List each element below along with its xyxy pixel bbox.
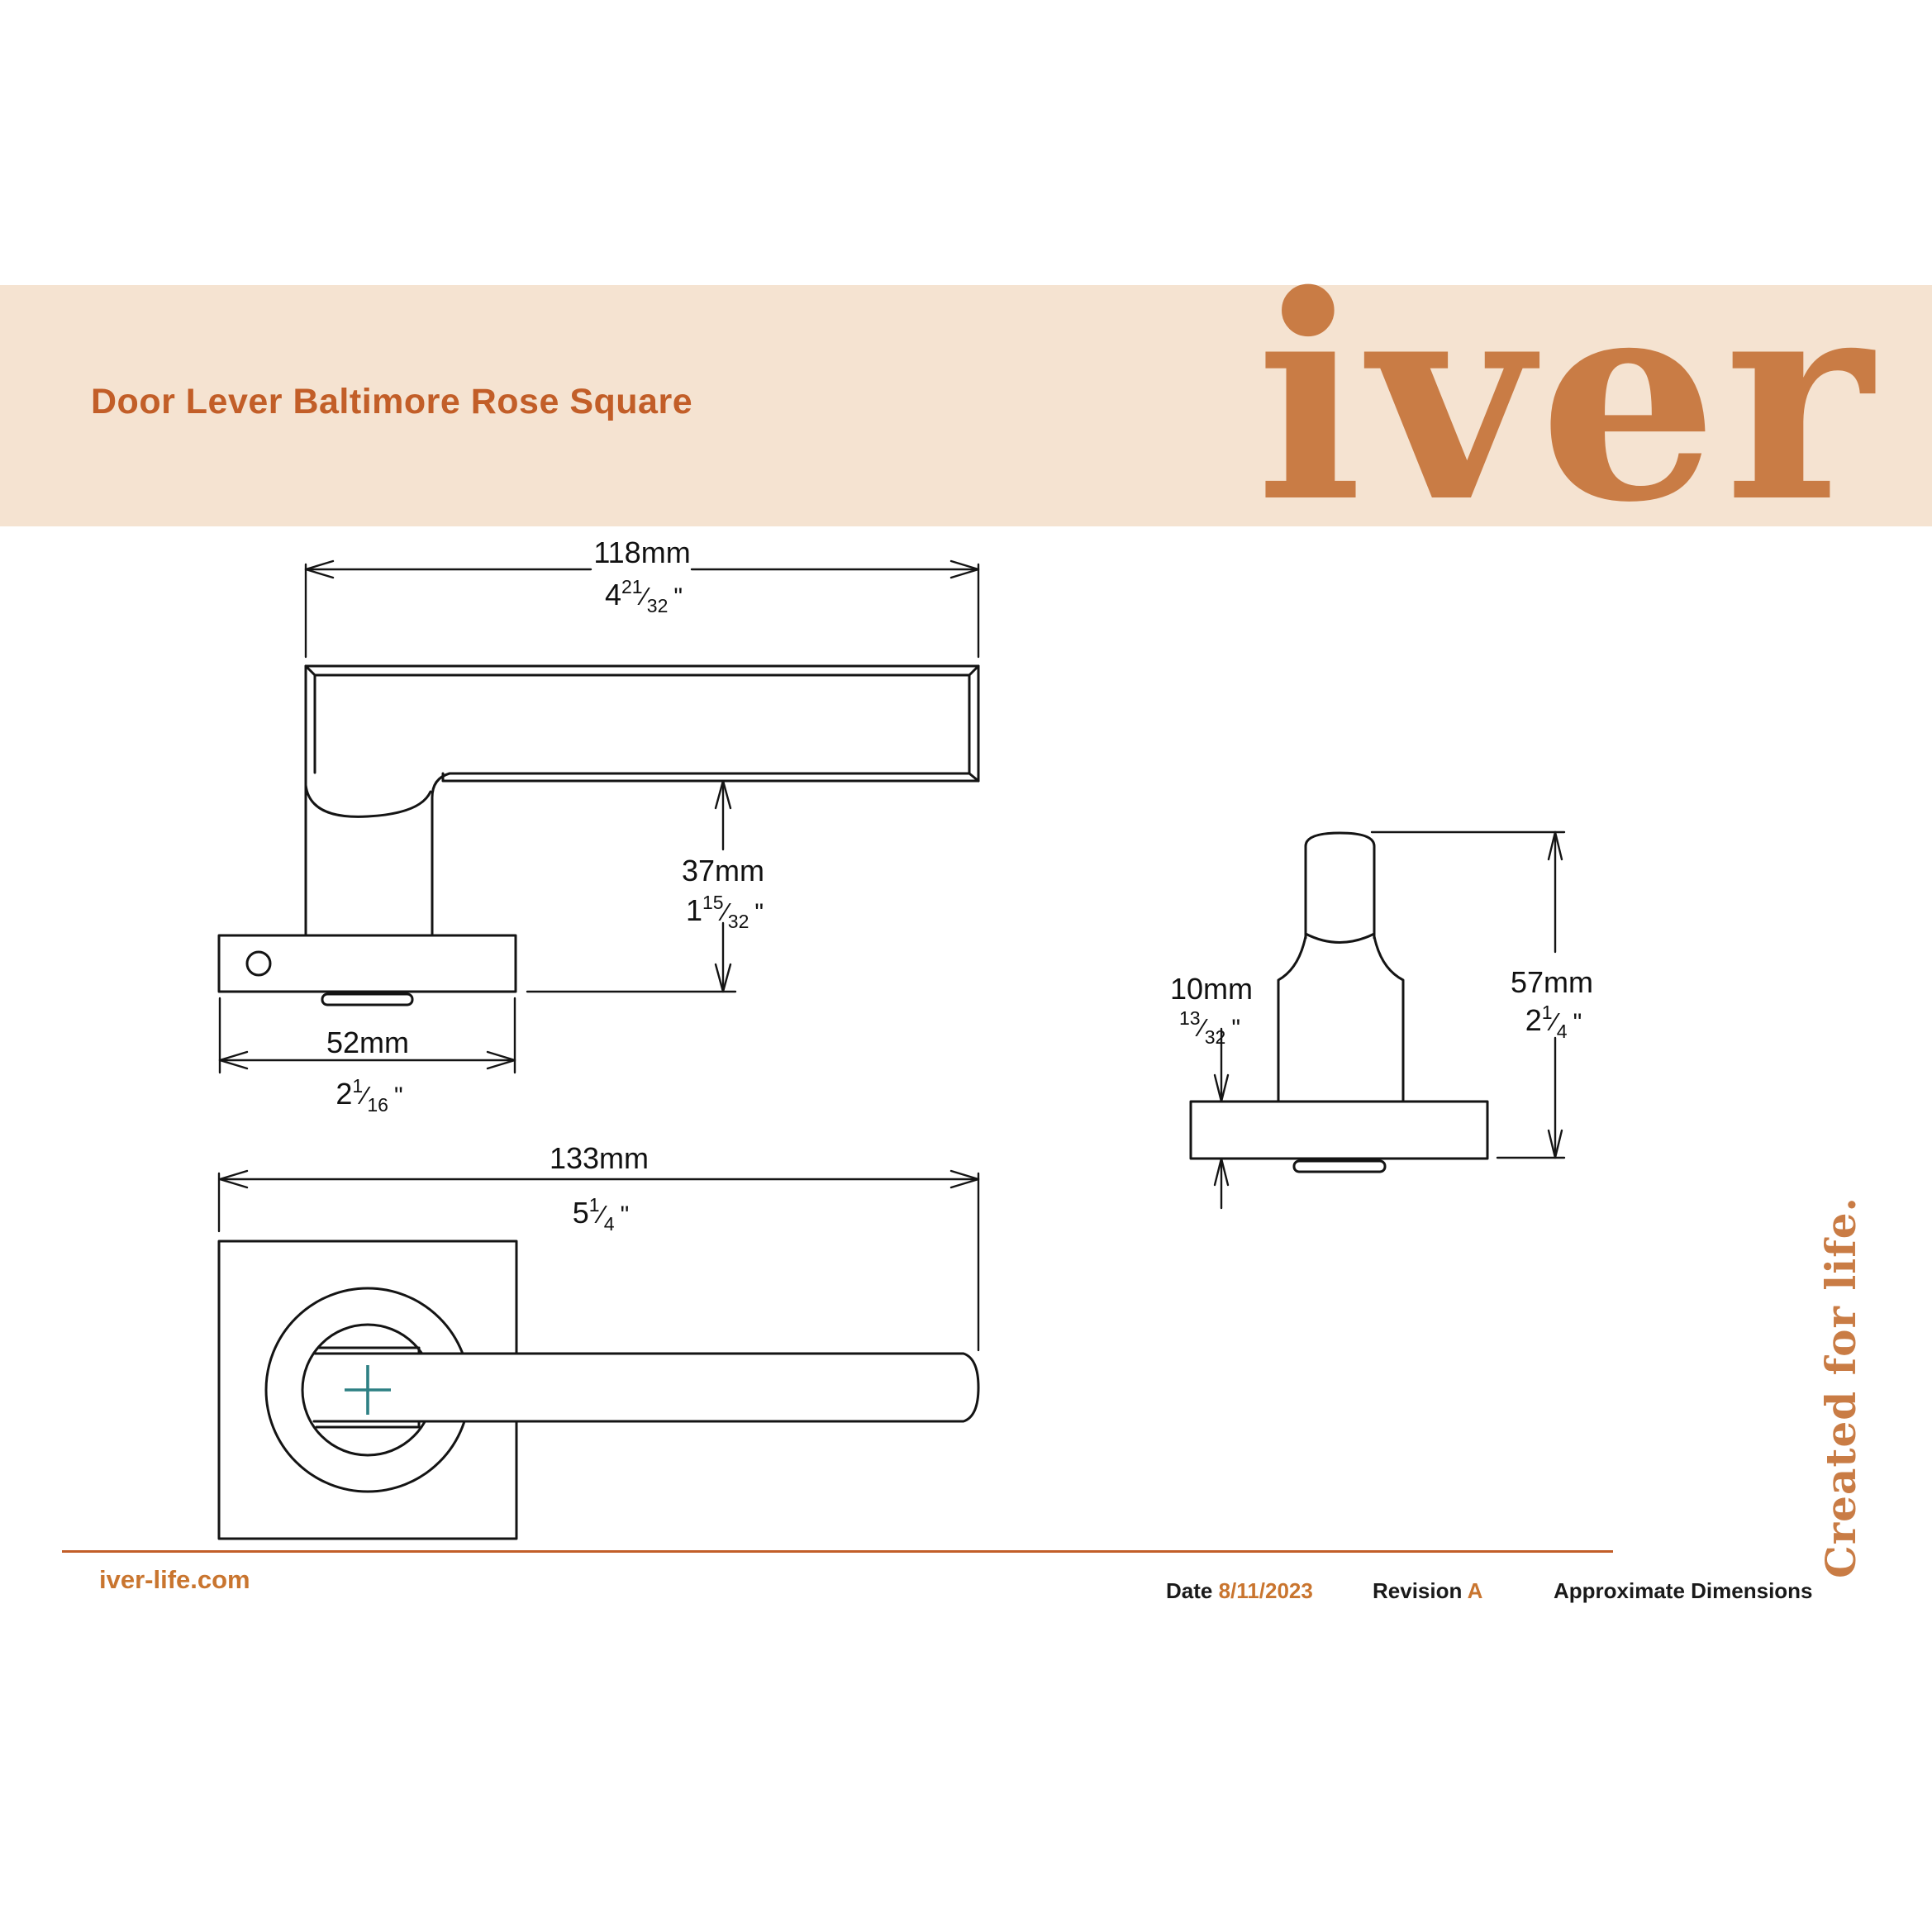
label-lever-length-mm: 118mm [593,535,690,569]
footer-revision: Revision A [1373,1578,1482,1604]
grip-end-face-arc [1306,934,1374,943]
front-view-lever [219,1241,978,1539]
side-view-lever [219,666,978,1005]
footer-note: Approximate Dimensions [1554,1578,1813,1604]
website-link[interactable]: iver-life.com [99,1565,250,1595]
label-rose-thickness-mm: 10mm [1170,972,1253,1006]
lever-bar-front-fill [314,1353,978,1422]
rose-plate-end [1191,1102,1487,1159]
lever-bar-bevel [306,666,978,781]
label-end-height-mm: 57mm [1511,965,1593,999]
tagline-vertical: Created for life. [1816,1139,1865,1578]
collar-side [322,994,412,1005]
grip-end-outline [1306,833,1374,938]
spec-sheet-page: Door Lever Baltimore Rose Square iver [0,0,1932,1932]
label-end-height-inch: 21⁄4" [1525,1002,1582,1042]
lever-bar-outline [306,666,978,935]
lever-neck-scoop [306,785,431,816]
label-rose-width-inch: 21⁄16" [335,1075,402,1116]
label-lever-length-inch: 421⁄32" [605,576,683,616]
technical-drawing: 118mm 421⁄32" 37mm 115⁄32" 52mm 21⁄16" 1… [0,0,1932,1932]
collar-end [1294,1161,1385,1172]
label-overall-length-mm: 133mm [550,1141,649,1175]
neck-flare-right [1374,936,1403,1102]
revision-value: A [1468,1578,1483,1603]
revision-label: Revision [1373,1578,1462,1603]
label-lever-height-inch: 115⁄32" [686,892,764,932]
label-overall-length-inch: 51⁄4" [573,1194,629,1235]
neck-flare-left [1278,936,1306,1102]
label-rose-thickness-inch: 13⁄32" [1179,1007,1240,1048]
screw-hole-icon [247,952,270,975]
lever-neck-right-edge [432,773,450,935]
label-lever-height-mm: 37mm [682,854,764,887]
dimension-lines [219,561,1564,1350]
footer-divider [62,1550,1613,1553]
date-label: Date [1166,1578,1212,1603]
label-rose-width-mm: 52mm [326,1025,409,1059]
footer-date: Date 8/11/2023 [1166,1578,1313,1604]
rose-plate-side [219,935,516,992]
date-value: 8/11/2023 [1219,1578,1313,1603]
